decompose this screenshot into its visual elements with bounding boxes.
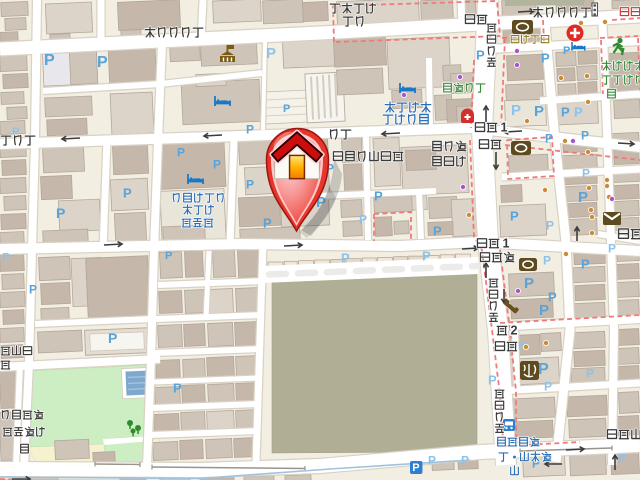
svg-text:1: 1 (500, 121, 507, 135)
svg-text:P: P (546, 219, 554, 233)
svg-text:P: P (177, 146, 185, 160)
svg-text:P: P (582, 167, 590, 181)
svg-text:P: P (539, 302, 549, 319)
svg-text:P: P (476, 47, 485, 62)
svg-text:P: P (581, 256, 590, 271)
svg-text:P: P (608, 242, 616, 256)
svg-text:P: P (545, 132, 553, 146)
svg-text:P: P (544, 380, 552, 394)
svg-text:P: P (266, 45, 276, 62)
svg-text:P: P (29, 283, 37, 297)
svg-text:P: P (563, 45, 570, 57)
svg-text:P: P (246, 123, 254, 137)
svg-text:P: P (56, 205, 65, 221)
svg-text:P: P (618, 452, 626, 466)
svg-text:P: P (561, 104, 570, 119)
svg-text:P: P (359, 213, 367, 227)
svg-text:P: P (574, 104, 583, 119)
svg-text:P: P (538, 361, 549, 378)
svg-text:P: P (374, 188, 383, 203)
svg-text:P: P (433, 223, 442, 238)
svg-text:P: P (428, 454, 436, 468)
svg-text:P: P (541, 50, 550, 65)
svg-text:P: P (548, 289, 557, 304)
svg-text:P: P (263, 215, 272, 230)
svg-text:P: P (488, 372, 497, 387)
svg-text:P: P (578, 189, 588, 206)
svg-text:P: P (283, 103, 290, 115)
svg-text:P: P (461, 454, 469, 468)
svg-text:P: P (2, 251, 10, 265)
svg-text:P: P (534, 103, 544, 120)
svg-text:P: P (97, 54, 108, 71)
svg-text:1: 1 (502, 237, 509, 251)
svg-text:P: P (246, 178, 254, 192)
svg-text:P: P (586, 367, 594, 381)
svg-text:P: P (581, 129, 589, 143)
svg-text:P: P (422, 248, 431, 263)
svg-text:P: P (510, 208, 519, 223)
svg-text:P: P (543, 254, 551, 268)
svg-text:P: P (213, 158, 221, 172)
svg-text:P: P (44, 52, 55, 69)
svg-text:P: P (123, 185, 132, 200)
svg-text:P: P (511, 102, 521, 119)
svg-text:P: P (524, 275, 534, 292)
svg-text:P: P (341, 250, 350, 265)
svg-text:P: P (108, 330, 117, 346)
svg-text:P: P (412, 462, 419, 474)
svg-text:P: P (173, 380, 182, 395)
svg-text:P: P (165, 250, 172, 262)
svg-text:2: 2 (510, 324, 517, 338)
